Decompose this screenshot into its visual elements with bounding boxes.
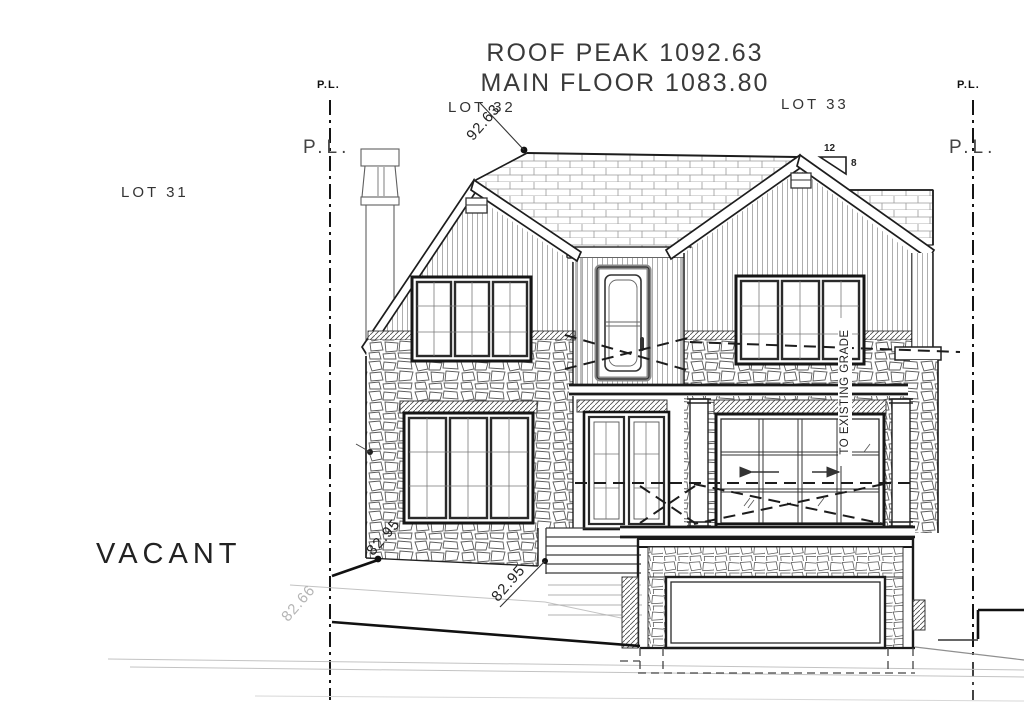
attic-vent-right: [791, 173, 811, 188]
property-line-label-right-top: P.L.: [957, 79, 980, 91]
attic-vent-left: [466, 198, 487, 213]
lot-33-label: LOT 33: [781, 96, 849, 113]
main-left-window: [400, 401, 537, 523]
slope-rise-label: 12: [824, 143, 835, 154]
main-right-section: [684, 396, 913, 528]
center-section: [573, 258, 688, 385]
sliding-window: [716, 414, 884, 528]
garage: [620, 526, 925, 673]
lot-31-label: LOT 31: [121, 184, 189, 201]
foundation-dashed: [620, 648, 915, 673]
roof-peak-title: ROOF PEAK 1092.63: [430, 38, 820, 68]
upper-left-window: [412, 277, 531, 361]
floor-band: [569, 384, 908, 396]
french-doors: [577, 400, 669, 529]
property-line-label-right: P.L.: [949, 137, 996, 159]
entry-door: [597, 267, 649, 379]
porch-post-right: [889, 399, 913, 528]
property-line-label-left: P.L.: [303, 137, 350, 159]
site-elevation-drawing: ROOF PEAK 1092.63 MAIN FLOOR 1083.80 LOT…: [0, 0, 1024, 705]
vacant-label: VACANT: [96, 538, 241, 571]
main-floor-title: MAIN FLOOR 1083.80: [430, 68, 820, 98]
property-line-label-left-top: P.L.: [317, 79, 340, 91]
title-block: ROOF PEAK 1092.63 MAIN FLOOR 1083.80: [430, 38, 820, 98]
porch-post-left: [687, 399, 711, 528]
slope-run-label: 8: [851, 158, 857, 169]
garage-door: [666, 577, 885, 648]
to-existing-grade-note: TO EXISTING GRADE: [838, 318, 852, 466]
